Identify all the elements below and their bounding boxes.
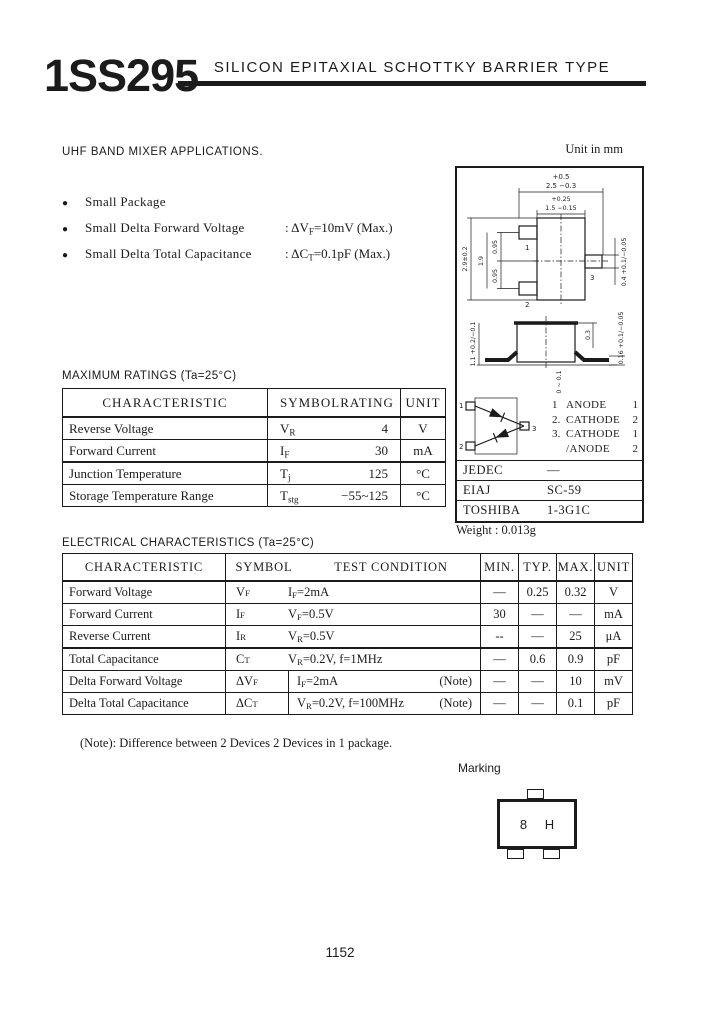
maximum-ratings-table: CHARACTERISTIC SYMBOL RATING UNIT Revers…	[62, 388, 446, 507]
bullet-icon: ●	[62, 250, 85, 261]
typ-cell: —	[519, 671, 557, 693]
feature-label: Small Package	[85, 194, 285, 210]
table-row: Junction Temperature Tj 125 °C	[63, 462, 446, 485]
standard-code: SC-59	[547, 483, 642, 498]
symbol-cell: VR	[280, 421, 295, 437]
unit-cell: pF	[595, 693, 633, 715]
diode-1-symbol	[489, 408, 505, 422]
top-view-pin3-label: 3	[590, 274, 594, 282]
note-ref: (Note)	[439, 696, 472, 711]
marking-top-lead	[527, 789, 544, 799]
column-header: TEST CONDITION	[302, 560, 480, 575]
pin-function: ANODE	[566, 398, 628, 413]
electrical-characteristics-table: CHARACTERISTIC SYMBOL TEST CONDITION MIN…	[62, 553, 633, 715]
column-header: MIN.	[481, 554, 519, 582]
package-code-list: JEDEC — EIAJ SC-59 TOSHIBA 1-3G1C	[457, 460, 642, 520]
condition-cell: VR=0.2V, f=100MHz	[297, 696, 404, 711]
column-header: UNIT	[595, 554, 633, 582]
title-rule	[178, 81, 646, 86]
maximum-ratings-heading: MAXIMUM RATINGS (Ta=25°C)	[62, 370, 236, 382]
max-cell: 0.9	[557, 648, 595, 671]
condition-cell: VR=0.2V, f=1MHz	[288, 652, 382, 667]
column-header: RATING	[340, 395, 394, 411]
dim-lead-span: 1.9	[478, 256, 485, 266]
dim-width-plus: +0.5	[553, 173, 570, 181]
symbol-cell: IR	[226, 626, 288, 647]
column-header: CHARACTERISTIC	[63, 554, 226, 582]
rating-cell: 30	[375, 443, 388, 459]
table-row: Forward Current IF VF=0.5V 30 — — mA	[63, 604, 633, 626]
condition-cell: IF=2mA	[288, 585, 329, 600]
typ-cell: —	[519, 693, 557, 715]
pin-function-row: 2. CATHODE 2	[552, 413, 638, 428]
symbol-cell: IF	[226, 604, 288, 625]
characteristic-cell: Forward Current	[63, 440, 268, 463]
unit-note: Unit in mm	[523, 142, 623, 157]
table-row: Reverse Voltage VR 4 V	[63, 417, 446, 440]
marking-heading: Marking	[458, 761, 501, 775]
unit-cell: V	[595, 581, 633, 604]
pin-device: 1	[628, 427, 638, 442]
part-number: 1SS295	[44, 50, 198, 102]
pin-function-row: /ANODE 2	[552, 442, 638, 457]
max-cell: 0.1	[557, 693, 595, 715]
column-header: CHARACTERISTIC	[63, 389, 268, 418]
feature-label: Small Delta Forward Voltage	[85, 220, 285, 236]
min-cell: —	[481, 693, 519, 715]
characteristic-cell: Forward Current	[63, 604, 226, 626]
package-outline-box: +0.5 2.5 −0.3 +0.25 1.5 −0.15 2.9±0.2 1.…	[455, 166, 644, 523]
table-row: Forward Voltage VF IF=2mA — 0.25 0.32 V	[63, 581, 633, 604]
symbol-cell: Tstg	[280, 488, 299, 504]
dim-height: 2.9±0.2	[462, 246, 469, 271]
electrical-characteristics-heading: ELECTRICAL CHARACTERISTICS (Ta=25°C)	[62, 537, 314, 549]
max-cell: 25	[557, 626, 595, 649]
max-cell: 10	[557, 671, 595, 693]
pin-function-row: 3. CATHODE 1	[552, 427, 638, 442]
characteristic-cell: Delta Forward Voltage	[63, 671, 226, 693]
max-cell: —	[557, 604, 595, 626]
schematic-pin3-label: 3	[532, 425, 536, 433]
symbol-cell: VF	[226, 582, 288, 603]
characteristic-cell: Junction Temperature	[63, 462, 268, 485]
table-header-row: CHARACTERISTIC SYMBOL TEST CONDITION MIN…	[63, 554, 633, 582]
table-row: Forward Current IF 30 mA	[63, 440, 446, 463]
unit-cell: mA	[595, 604, 633, 626]
internal-circuit-diagram: 1 2 3	[459, 394, 549, 460]
table-row: Total Capacitance CT VR=0.2V, f=1MHz — 0…	[63, 648, 633, 671]
column-header: MAX.	[557, 554, 595, 582]
feature-item: ● Small Package	[62, 194, 442, 209]
unit-cell: V	[401, 417, 446, 440]
table-row: Reverse Current IR VR=0.5V -- — 25 μA	[63, 626, 633, 649]
unit-cell: pF	[595, 648, 633, 671]
dim-standoff: 0 ~ 0.1	[556, 370, 563, 393]
dim-side-height: 1.1 +0.2/−0.1	[470, 322, 477, 367]
standard-code: 1-3G1C	[547, 503, 642, 518]
weight-note: Weight : 0.013g	[456, 523, 536, 538]
unit-cell: °C	[401, 485, 446, 507]
dim-side-top: 0.3	[585, 330, 592, 340]
rating-cell: −55~125	[341, 488, 388, 504]
typ-cell: —	[519, 626, 557, 649]
top-view-pin1-label: 1	[525, 244, 529, 252]
typ-cell: —	[519, 604, 557, 626]
pin-number: 3.	[552, 427, 566, 442]
datasheet-page: 1SS295 SILICON EPITAXIAL SCHOTTKY BARRIE…	[0, 0, 720, 1012]
pin-function-row: 1 ANODE 1	[552, 398, 638, 413]
min-cell: --	[481, 626, 519, 649]
pin-function: CATHODE	[566, 413, 628, 428]
symbol-cell: ΔVF	[226, 671, 288, 692]
characteristic-cell: Delta Total Capacitance	[63, 693, 226, 715]
package-top-view-drawing: +0.5 2.5 −0.3 +0.25 1.5 −0.15 2.9±0.2 1.…	[457, 170, 642, 308]
marking-figure: 8 H	[497, 799, 577, 849]
condition-cell: VF=0.5V	[288, 607, 334, 622]
note-ref: (Note)	[439, 674, 472, 689]
pin-number	[552, 442, 566, 457]
typ-cell: 0.25	[519, 581, 557, 604]
dim-body-width: 1.5 −0.15	[545, 205, 576, 212]
pin-device: 1	[628, 398, 638, 413]
pin-number: 2.	[552, 413, 566, 428]
characteristic-cell: Forward Voltage	[63, 581, 226, 604]
column-header: TYP.	[519, 554, 557, 582]
column-header: SYMBOL	[280, 395, 340, 411]
pin-function-list: 1 ANODE 1 2. CATHODE 2 3. CATHODE 1 /ANO…	[552, 398, 638, 456]
rating-cell: 4	[382, 421, 389, 437]
dim-width: 2.5 −0.3	[546, 182, 576, 190]
dim-pitch-lower: 0.95	[492, 269, 499, 283]
application-line: UHF BAND MIXER APPLICATIONS.	[62, 146, 263, 158]
feature-value: : ΔVF=10mV (Max.)	[285, 220, 442, 236]
min-cell: —	[481, 581, 519, 604]
bullet-icon: ●	[62, 224, 85, 235]
characteristic-cell: Storage Temperature Range	[63, 485, 268, 507]
min-cell: 30	[481, 604, 519, 626]
column-header: SYMBOL	[226, 560, 302, 575]
feature-item: ● Small Delta Forward Voltage : ΔVF=10mV…	[62, 220, 442, 235]
marking-bottom-lead-2	[543, 849, 560, 859]
symbol-cell: ΔCT	[226, 693, 288, 714]
package-code-row: JEDEC —	[457, 460, 642, 480]
condition-cell: IF=2mA	[297, 674, 338, 689]
standard-code: —	[547, 463, 642, 478]
pin-function: CATHODE	[566, 427, 628, 442]
min-cell: —	[481, 671, 519, 693]
package-code-row: TOSHIBA 1-3G1C	[457, 500, 642, 520]
dim-lead-width: 0.4 +0.1/−0.05	[621, 238, 628, 287]
marking-code: 8 H	[513, 817, 561, 832]
marking-bottom-lead-1	[507, 849, 524, 859]
bullet-icon: ●	[62, 198, 85, 209]
package-code-row: EIAJ SC-59	[457, 480, 642, 500]
note-line: (Note): Difference between 2 Devices 2 D…	[80, 736, 392, 751]
characteristic-cell: Reverse Voltage	[63, 417, 268, 440]
standard-name: TOSHIBA	[457, 503, 547, 518]
unit-cell: mV	[595, 671, 633, 693]
dim-lead-thickness: 0.16 +0.1/−0.05	[618, 312, 625, 365]
standard-name: JEDEC	[457, 463, 547, 478]
feature-item: ● Small Delta Total Capacitance : ΔCT=0.…	[62, 246, 442, 261]
symbol-cell: Tj	[280, 466, 290, 482]
typ-cell: 0.6	[519, 648, 557, 671]
pin-device: 2	[628, 413, 638, 428]
package-side-view-drawing: 1.1 +0.2/−0.1 0.3 0.16 +0.1/−0.05 0 ~ 0.…	[457, 308, 642, 394]
unit-cell: °C	[401, 462, 446, 485]
condition-cell: VR=0.5V	[288, 629, 335, 644]
feature-value: : ΔCT=0.1pF (Max.)	[285, 246, 442, 262]
rating-cell: 125	[369, 466, 389, 482]
page-number: 1152	[290, 945, 390, 960]
characteristic-cell: Total Capacitance	[63, 648, 226, 671]
table-row: Delta Total Capacitance ΔCT VR=0.2V, f=1…	[63, 693, 633, 715]
dim-pitch-upper: 0.95	[492, 240, 499, 254]
unit-cell: μA	[595, 626, 633, 649]
feature-label: Small Delta Total Capacitance	[85, 246, 285, 262]
schematic-pin1-label: 1	[459, 402, 463, 410]
characteristic-cell: Reverse Current	[63, 626, 226, 649]
column-header: UNIT	[401, 389, 446, 418]
table-row: Delta Forward Voltage ΔVF IF=2mA(Note) —…	[63, 671, 633, 693]
pin-number: 1	[552, 398, 566, 413]
table-row: Storage Temperature Range Tstg −55~125 °…	[63, 485, 446, 507]
unit-cell: mA	[401, 440, 446, 463]
symbol-cell: IF	[280, 443, 289, 459]
page-title: SILICON EPITAXIAL SCHOTTKY BARRIER TYPE	[178, 59, 646, 76]
max-cell: 0.32	[557, 581, 595, 604]
table-header-row: CHARACTERISTIC SYMBOL RATING UNIT	[63, 389, 446, 418]
diode-2-symbol	[493, 428, 509, 442]
dim-body-width-plus: +0.25	[551, 196, 570, 203]
top-view-pin2-label: 2	[525, 301, 529, 308]
pin-device: 2	[628, 442, 638, 457]
feature-list: ● Small Package ● Small Delta Forward Vo…	[62, 194, 442, 272]
symbol-cell: CT	[226, 649, 288, 670]
standard-name: EIAJ	[457, 483, 547, 498]
pin-function: /ANODE	[566, 442, 628, 457]
schematic-pin2-label: 2	[459, 443, 463, 451]
min-cell: —	[481, 648, 519, 671]
